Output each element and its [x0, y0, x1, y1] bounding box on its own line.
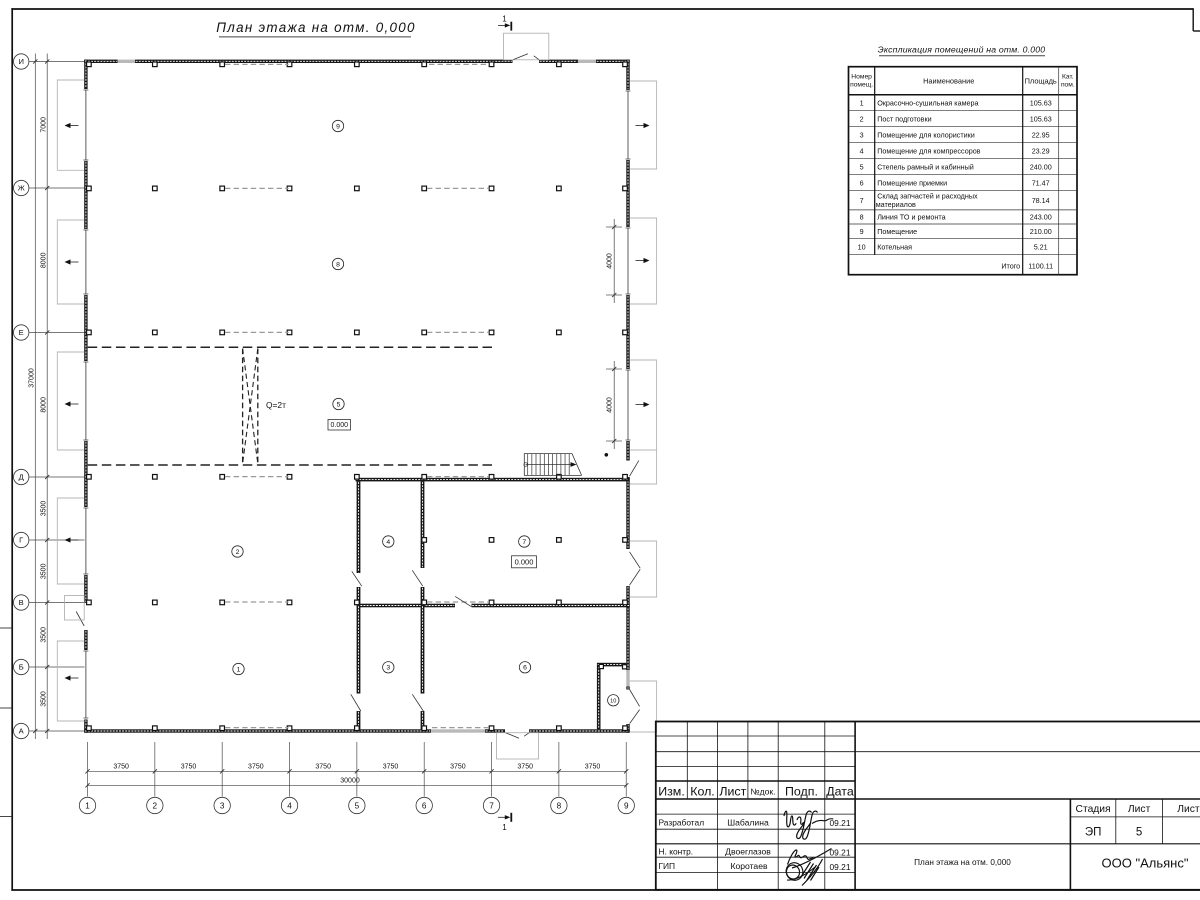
svg-text:3750: 3750	[517, 763, 533, 770]
svg-text:Е: Е	[19, 328, 24, 337]
svg-text:1: 1	[85, 801, 90, 810]
svg-text:9: 9	[624, 801, 629, 810]
svg-text:1: 1	[860, 98, 864, 107]
svg-text:пом.: пом.	[1061, 82, 1075, 89]
svg-text:9: 9	[336, 123, 340, 130]
svg-text:3500: 3500	[41, 627, 48, 643]
svg-text:2: 2	[153, 801, 158, 810]
svg-text:210.00: 210.00	[1030, 227, 1052, 236]
svg-text:Лист: Лист	[1128, 804, 1151, 815]
svg-text:Q=2т: Q=2т	[266, 400, 286, 410]
svg-text:Кол.: Кол.	[690, 785, 715, 799]
svg-text:Лист: Лист	[719, 785, 746, 799]
svg-text:6: 6	[523, 665, 527, 672]
svg-text:Изм.: Изм.	[658, 785, 685, 799]
svg-text:2: 2	[860, 114, 864, 123]
svg-text:7: 7	[860, 196, 864, 205]
svg-text:3: 3	[220, 801, 225, 810]
svg-text:Линия ТО и ремонта: Линия ТО и ремонта	[877, 213, 945, 222]
svg-text:План этажа на отм. 0,000: План этажа на отм. 0,000	[216, 20, 416, 35]
svg-text:5: 5	[860, 162, 864, 171]
svg-text:ГИП: ГИП	[659, 861, 676, 871]
svg-text:ООО "Альянс": ООО "Альянс"	[1102, 856, 1189, 871]
svg-text:Окрасочно-сушильная камера: Окрасочно-сушильная камера	[877, 98, 978, 107]
svg-text:3500: 3500	[41, 563, 48, 579]
svg-text:5: 5	[1136, 826, 1142, 838]
svg-text:1: 1	[502, 823, 507, 832]
svg-text:Шабалина: Шабалина	[727, 817, 769, 827]
svg-text:1100.11: 1100.11	[1028, 261, 1053, 270]
svg-text:4: 4	[386, 539, 390, 546]
svg-text:Помещение: Помещение	[877, 227, 917, 236]
svg-text:Номер: Номер	[851, 74, 872, 81]
svg-text:4: 4	[287, 801, 292, 810]
svg-text:09.21: 09.21	[830, 847, 851, 857]
svg-text:105.63: 105.63	[1030, 98, 1052, 107]
svg-text:3750: 3750	[315, 763, 331, 770]
svg-text:Наименование: Наименование	[923, 77, 974, 86]
svg-text:105.63: 105.63	[1030, 114, 1052, 123]
svg-text:3750: 3750	[181, 763, 197, 770]
svg-text:материалов: материалов	[876, 200, 916, 209]
svg-text:10: 10	[858, 242, 866, 251]
svg-text:37000: 37000	[29, 368, 36, 388]
svg-text:6: 6	[422, 801, 427, 810]
svg-text:8000: 8000	[41, 252, 48, 268]
svg-text:9: 9	[860, 227, 864, 236]
svg-text:09.21: 09.21	[830, 862, 851, 872]
svg-text:240.00: 240.00	[1030, 162, 1052, 171]
svg-text:8: 8	[336, 261, 340, 268]
svg-text:4000: 4000	[606, 397, 613, 413]
svg-text:3500: 3500	[41, 691, 48, 707]
svg-text:3500: 3500	[41, 501, 48, 517]
svg-text:Ж: Ж	[18, 184, 25, 193]
svg-text:3750: 3750	[585, 763, 601, 770]
svg-text:243.00: 243.00	[1030, 213, 1052, 222]
svg-text:22.95: 22.95	[1032, 130, 1050, 139]
svg-text:И: И	[18, 57, 23, 66]
svg-text:А: А	[19, 727, 25, 736]
svg-text:7: 7	[489, 801, 494, 810]
svg-text:2: 2	[236, 549, 240, 556]
svg-text:Г: Г	[19, 536, 23, 545]
svg-text:Подп.: Подп.	[785, 785, 818, 799]
svg-text:Котельная: Котельная	[877, 242, 912, 251]
svg-text:8: 8	[860, 213, 864, 222]
svg-text:Листов: Листов	[1177, 804, 1200, 815]
svg-text:3750: 3750	[113, 763, 129, 770]
svg-text:10: 10	[610, 699, 616, 705]
svg-text:Дата: Дата	[826, 785, 854, 799]
svg-text:0.000: 0.000	[515, 557, 534, 566]
svg-text:В: В	[19, 598, 24, 607]
svg-text:Помещение приемки: Помещение приемки	[877, 178, 947, 187]
svg-text:3750: 3750	[248, 763, 264, 770]
svg-text:4: 4	[860, 146, 864, 155]
svg-text:8: 8	[557, 801, 562, 810]
svg-text:5.21: 5.21	[1034, 242, 1048, 251]
svg-text:Итого: Итого	[1001, 261, 1020, 270]
svg-text:помещ.: помещ.	[850, 82, 873, 89]
svg-text:3: 3	[386, 665, 390, 672]
svg-text:5: 5	[337, 401, 341, 408]
svg-text:30000: 30000	[340, 777, 360, 784]
svg-text:Разработал: Разработал	[659, 817, 705, 827]
svg-text:Экспликация помещений на отм.: Экспликация помещений на отм. 0.000	[878, 44, 1046, 54]
svg-text:7000: 7000	[41, 117, 48, 133]
svg-text:8000: 8000	[41, 397, 48, 413]
svg-text:23.29: 23.29	[1032, 146, 1050, 155]
svg-text:1: 1	[237, 666, 241, 673]
svg-text:1: 1	[502, 15, 507, 24]
svg-text:Двоеглазов: Двоеглазов	[725, 847, 771, 857]
svg-text:3750: 3750	[383, 763, 399, 770]
svg-text:Коротаев: Коротаев	[730, 861, 768, 871]
svg-text:ЭП: ЭП	[1085, 826, 1102, 838]
svg-text:Д: Д	[19, 473, 24, 482]
svg-text:Площадь: Площадь	[1025, 77, 1057, 86]
svg-text:Н. контр.: Н. контр.	[659, 846, 694, 856]
svg-text:План этажа на отм. 0,000: План этажа на отм. 0,000	[914, 858, 1011, 867]
svg-text:Помещение для колористики: Помещение для колористики	[877, 130, 975, 139]
svg-text:71.47: 71.47	[1032, 178, 1050, 187]
svg-text:Кат.: Кат.	[1062, 74, 1074, 81]
svg-text:4000: 4000	[606, 253, 613, 269]
svg-text:№док.: №док.	[750, 787, 775, 797]
svg-text:09.21: 09.21	[830, 818, 851, 828]
svg-text:7: 7	[522, 539, 526, 546]
svg-text:6: 6	[860, 178, 864, 187]
svg-text:0.000: 0.000	[331, 422, 349, 429]
svg-text:5: 5	[355, 801, 360, 810]
svg-text:Степель рамный и кабинный: Степель рамный и кабинный	[877, 162, 974, 171]
svg-text:3750: 3750	[450, 763, 466, 770]
svg-text:Стадия: Стадия	[1076, 804, 1111, 815]
svg-text:Помещение для компрессоров: Помещение для компрессоров	[877, 146, 980, 155]
svg-text:Б: Б	[19, 663, 24, 672]
svg-text:3: 3	[860, 130, 864, 139]
svg-text:Пост подготовки: Пост подготовки	[877, 114, 931, 123]
svg-text:78.14: 78.14	[1032, 196, 1050, 205]
